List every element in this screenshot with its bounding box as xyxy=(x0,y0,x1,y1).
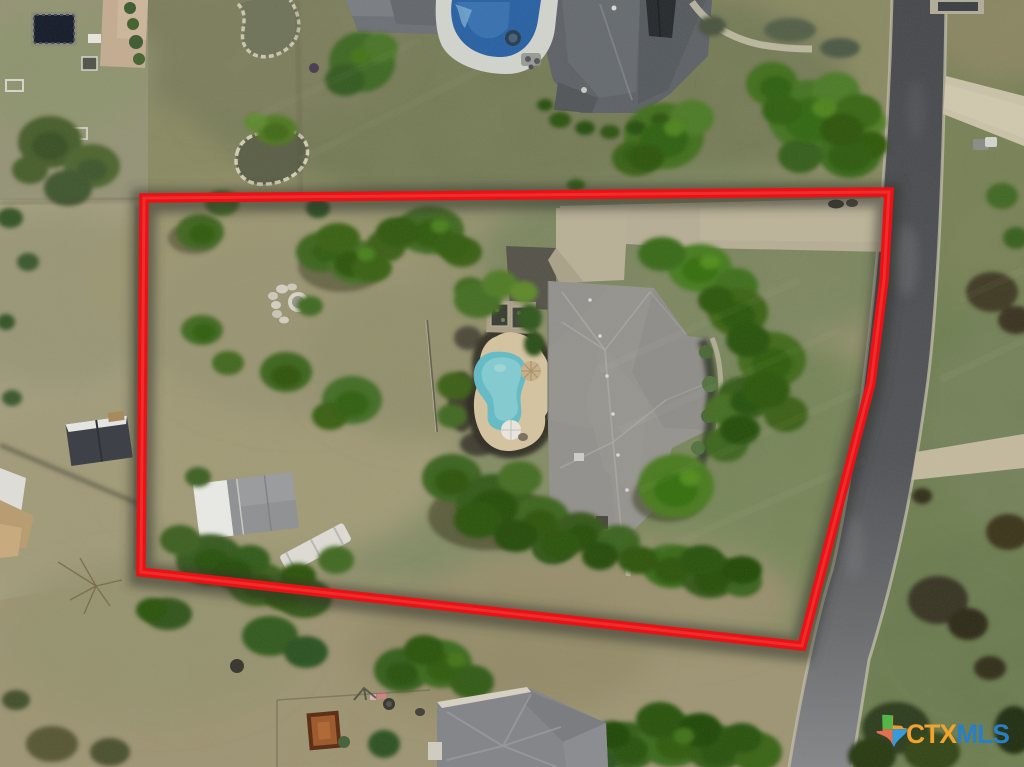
svg-text:CTXMLS: CTXMLS xyxy=(906,719,1009,749)
